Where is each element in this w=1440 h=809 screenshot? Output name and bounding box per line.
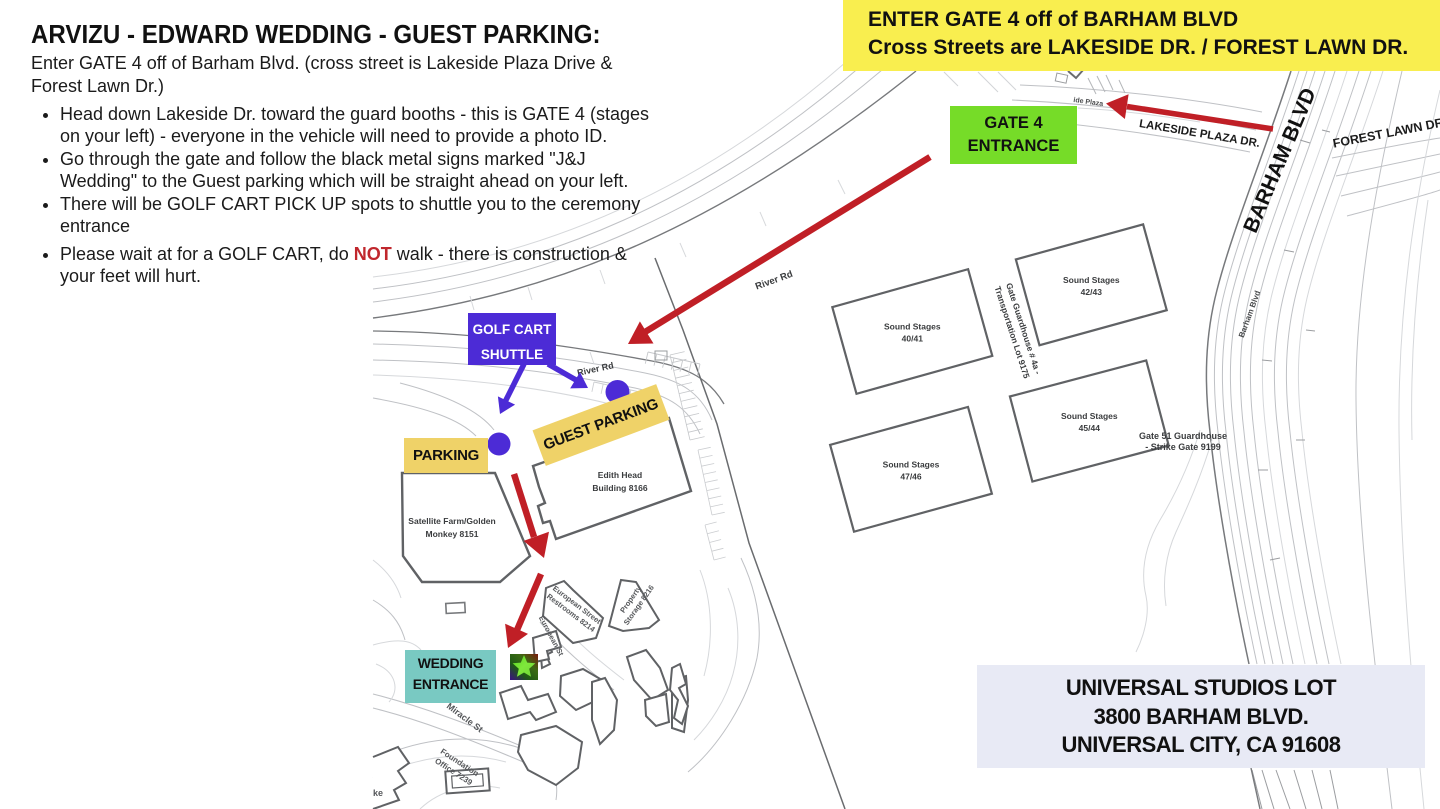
svg-text:Satellite Farm/Golden: Satellite Farm/Golden xyxy=(408,516,495,526)
svg-text:Building 8166: Building 8166 xyxy=(592,483,648,493)
svg-text:Sound Stages: Sound Stages xyxy=(883,459,940,469)
svg-text:Sound Stages: Sound Stages xyxy=(1063,275,1120,285)
svg-text:45/44: 45/44 xyxy=(1079,423,1101,433)
svg-text:42/43: 42/43 xyxy=(1081,287,1103,297)
svg-text:ke: ke xyxy=(373,788,383,798)
svg-text:River Rd: River Rd xyxy=(754,269,795,293)
svg-text:47/46: 47/46 xyxy=(900,471,922,481)
svg-text:Sound Stages: Sound Stages xyxy=(1061,411,1118,421)
svg-text:River Rd: River Rd xyxy=(576,360,614,377)
svg-text:40/41: 40/41 xyxy=(902,334,924,344)
svg-text:- Strike Gate 9199: - Strike Gate 9199 xyxy=(1145,442,1221,452)
svg-text:BARHAM BLVD: BARHAM BLVD xyxy=(1239,85,1321,236)
svg-text:ide Plaza: ide Plaza xyxy=(1073,97,1104,108)
svg-text:Monkey 8151: Monkey 8151 xyxy=(426,529,479,539)
svg-text:Sound Stages: Sound Stages xyxy=(884,322,941,332)
svg-text:Edith Head: Edith Head xyxy=(598,470,642,480)
svg-text:Miracle St: Miracle St xyxy=(445,701,485,735)
svg-text:Gate 51 Guardhouse: Gate 51 Guardhouse xyxy=(1139,431,1227,441)
